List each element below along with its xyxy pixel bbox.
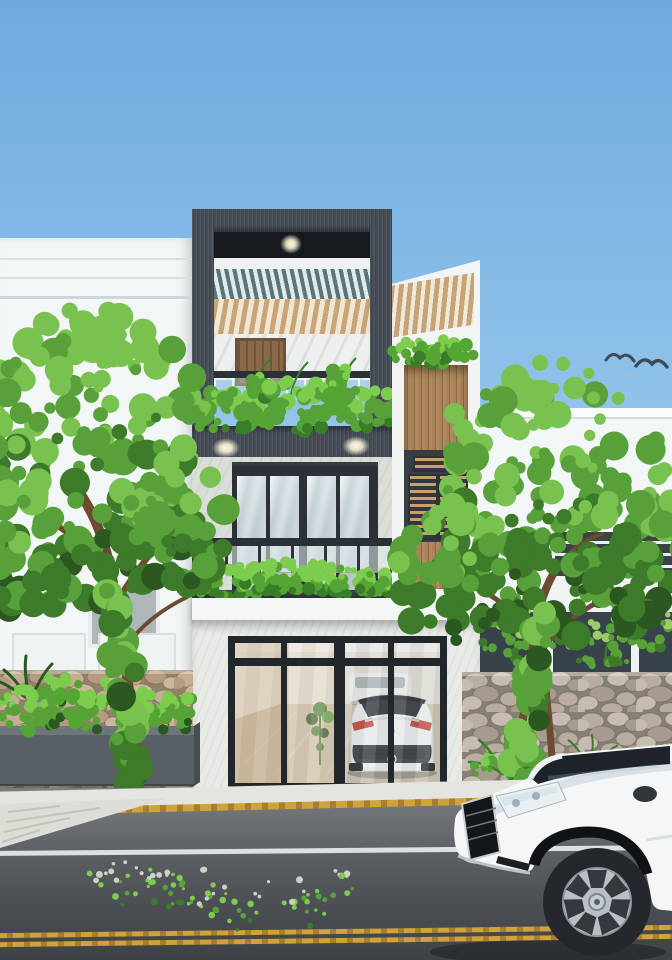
scattered-leaves	[70, 846, 370, 942]
tree-left	[0, 272, 228, 808]
scene-architectural-render	[0, 0, 672, 960]
facade-groove	[0, 258, 193, 260]
foreground-sedan	[438, 740, 672, 960]
tree-right	[412, 348, 672, 800]
